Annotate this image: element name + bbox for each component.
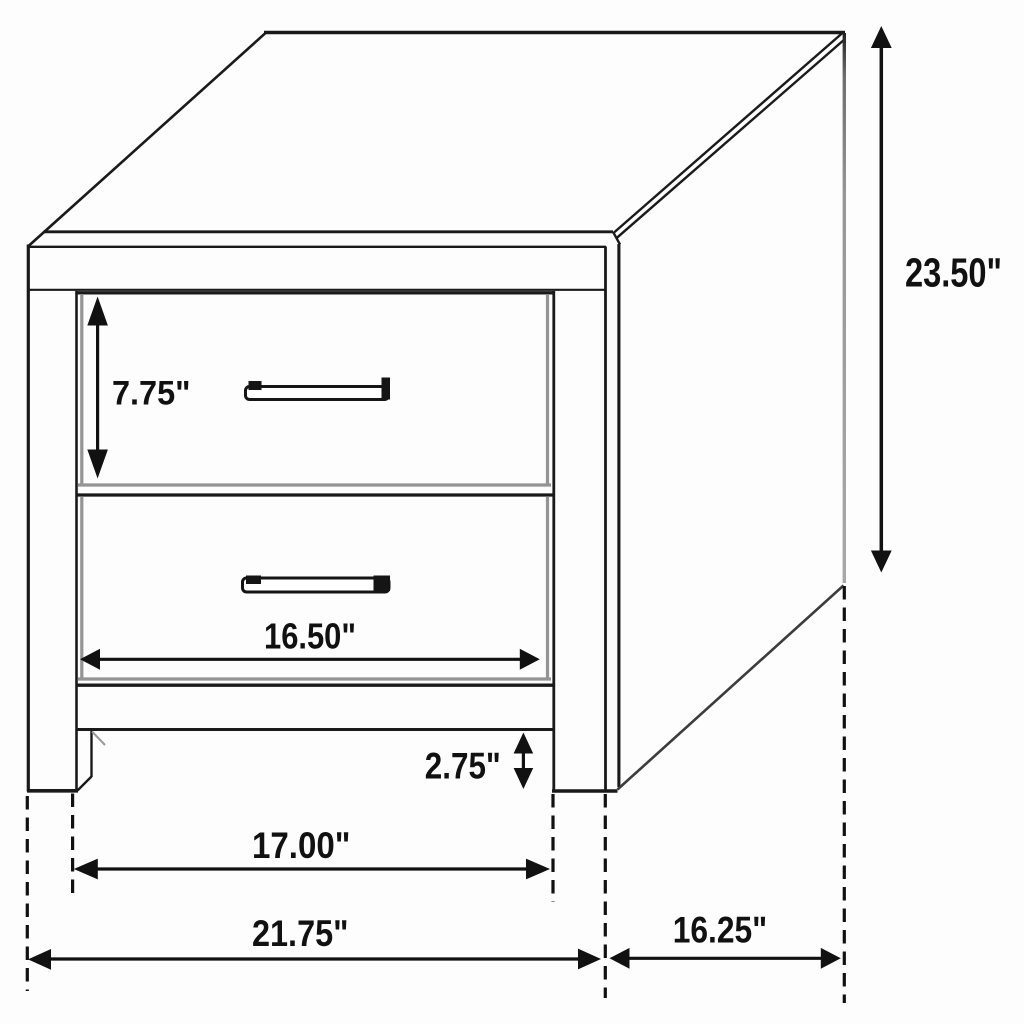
svg-text:21.75": 21.75" — [252, 912, 349, 954]
svg-text:2.75": 2.75" — [425, 745, 501, 787]
svg-text:23.50": 23.50" — [905, 249, 1002, 295]
svg-text:16.25": 16.25" — [673, 908, 768, 950]
svg-text:16.50": 16.50" — [264, 615, 356, 656]
svg-text:17.00": 17.00" — [252, 824, 351, 866]
svg-text:7.75": 7.75" — [112, 375, 191, 413]
